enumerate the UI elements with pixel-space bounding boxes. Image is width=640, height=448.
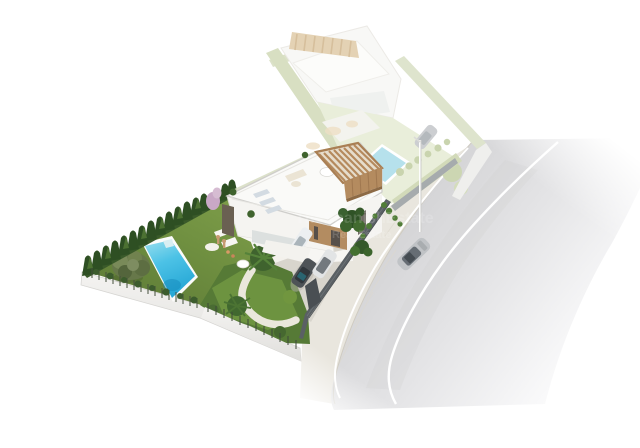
svg-text:TheSpanishEstate: TheSpanishEstate bbox=[295, 210, 434, 227]
svg-text:Real Estate: Real Estate bbox=[332, 229, 391, 241]
